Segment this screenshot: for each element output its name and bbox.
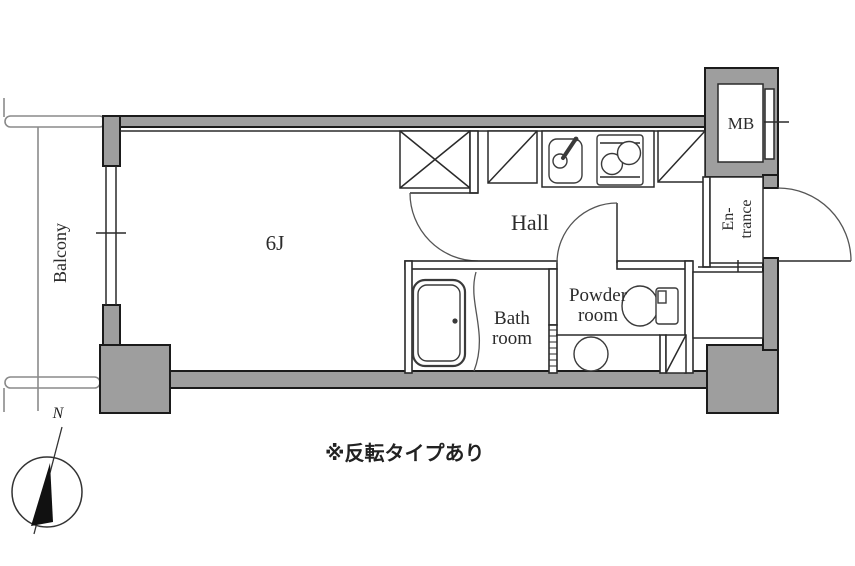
washer-divider [660, 335, 666, 373]
wall-bath-left [405, 261, 412, 373]
balcony-rail-top [5, 116, 105, 127]
pillar-bottom-right [707, 345, 778, 413]
wall-bath-powder [549, 269, 557, 325]
kitchen-faucet-head [574, 137, 579, 142]
toilet-handle [658, 291, 666, 303]
bath-door-curve [474, 272, 480, 371]
closet-hall [488, 131, 537, 183]
balcony-rail-bottom [5, 377, 100, 388]
note-text: ※反転タイプあり [325, 442, 484, 465]
bath-folding-door [549, 325, 557, 373]
powder-label-line2: room [578, 305, 618, 326]
wall-left-stub [103, 305, 120, 345]
balcony-label-group: Balcony [50, 223, 70, 283]
entrance-storage-box [693, 272, 763, 338]
entrance-label-line1: En- [720, 207, 737, 230]
meter-box-label: MB [728, 114, 754, 133]
wall-corner-top-left [103, 116, 120, 166]
meter-box-door [765, 89, 774, 159]
pillar-bottom-left [100, 345, 170, 413]
room-6j-door-arc [410, 193, 478, 261]
wall-6j-hall [470, 131, 478, 193]
compass: N [12, 405, 82, 534]
balcony-label: Balcony [50, 223, 70, 283]
wall-right-upper [763, 175, 778, 188]
bathroom-label-line1: Bath [494, 308, 530, 329]
washing-machine-circle [574, 337, 608, 371]
bathroom [413, 272, 479, 371]
powder-label-line1: Powder [569, 285, 628, 306]
closet-6j [400, 131, 470, 188]
balcony-window [96, 166, 126, 305]
north-label: N [52, 405, 65, 422]
room-6j-label: 6J [266, 231, 285, 255]
entrance-label-line2: trance [738, 199, 755, 238]
kitchen [542, 131, 654, 187]
floor-plan-svg: MB [0, 0, 855, 566]
wall-powder-top [617, 261, 692, 269]
wall-top [103, 116, 707, 127]
floor-plan-page: MB [0, 0, 855, 566]
stove-burner-right [618, 142, 641, 165]
wall-bath-top [405, 261, 557, 269]
hall-label: Hall [511, 210, 549, 235]
compass-north-arrow [31, 463, 53, 526]
wall-hall-entrance [703, 177, 710, 267]
entrance-door-arc [778, 188, 851, 261]
bathroom-label-line2: room [492, 328, 532, 349]
powder-door-arc [557, 203, 617, 263]
wall-right-lower [763, 258, 778, 350]
wall-bottom [170, 371, 707, 388]
bathtub-drain [452, 318, 457, 323]
closet-entry [658, 131, 705, 182]
toilet-bowl [622, 286, 658, 326]
